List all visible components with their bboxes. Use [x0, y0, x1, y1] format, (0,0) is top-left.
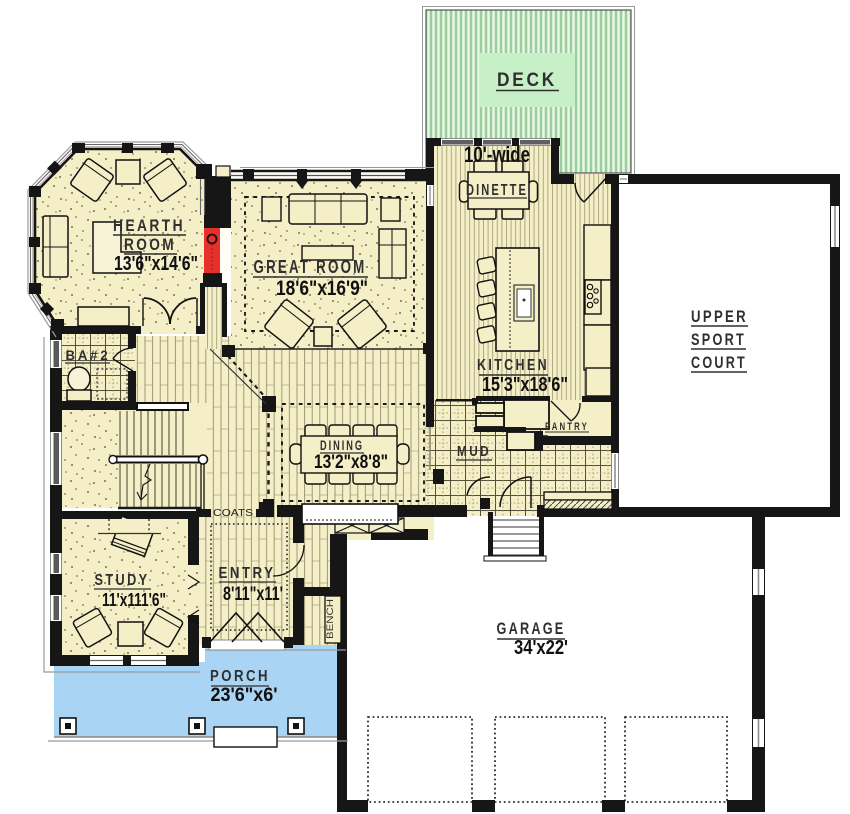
svg-text:DINETTE: DINETTE	[466, 182, 528, 199]
svg-text:HEARTH: HEARTH	[113, 216, 185, 235]
svg-text:10'-wide: 10'-wide	[464, 142, 530, 167]
svg-text:ENTRY: ENTRY	[219, 565, 276, 582]
svg-text:8'11"x11': 8'11"x11'	[223, 584, 283, 605]
svg-text:34'x22': 34'x22'	[514, 637, 568, 659]
svg-text:PANTRY: PANTRY	[545, 421, 589, 433]
svg-text:PORCH: PORCH	[210, 668, 270, 685]
svg-text:BENCH: BENCH	[325, 599, 336, 639]
svg-text:UPPER: UPPER	[691, 307, 748, 326]
svg-text:13'6"x14'6": 13'6"x14'6"	[114, 253, 198, 275]
svg-text:ROOM: ROOM	[124, 235, 176, 254]
svg-text:11'x111'6": 11'x111'6"	[102, 590, 166, 610]
svg-text:SPORT: SPORT	[691, 330, 746, 349]
svg-text:DINING: DINING	[320, 437, 364, 453]
svg-text:KITCHEN: KITCHEN	[477, 357, 549, 374]
svg-text:MUD: MUD	[457, 443, 491, 460]
svg-text:GREAT ROOM: GREAT ROOM	[254, 257, 367, 277]
svg-text:COURT: COURT	[691, 353, 747, 372]
svg-text:13'2"x8'8": 13'2"x8'8"	[314, 452, 388, 473]
svg-text:BA#2: BA#2	[66, 347, 111, 363]
svg-text:COATS: COATS	[213, 508, 253, 519]
svg-text:23'6"x6': 23'6"x6'	[211, 685, 278, 706]
svg-text:15'3"x18'6": 15'3"x18'6"	[482, 374, 568, 396]
svg-text:STUDY: STUDY	[95, 572, 150, 589]
svg-text:18'6"x16'9": 18'6"x16'9"	[276, 277, 368, 300]
svg-text:GARAGE: GARAGE	[497, 619, 566, 638]
svg-text:DECK: DECK	[497, 70, 557, 91]
